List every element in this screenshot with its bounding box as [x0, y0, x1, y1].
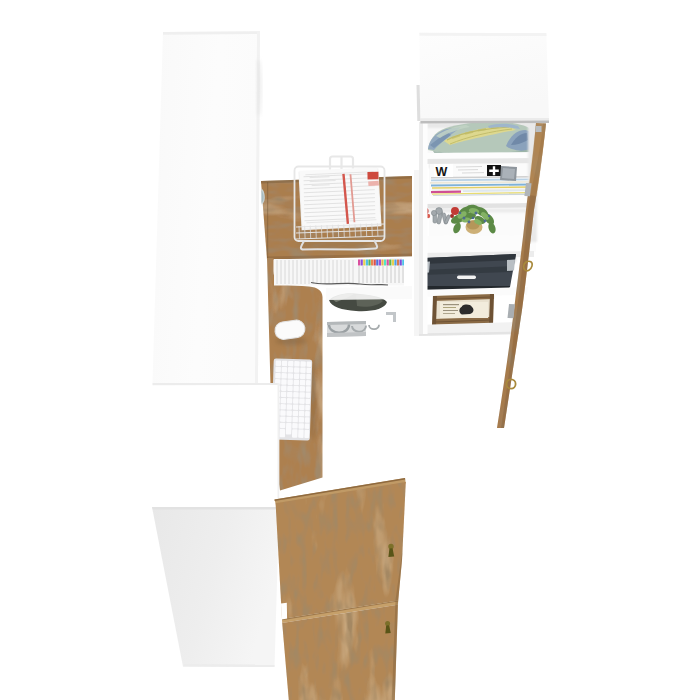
svg-text:W: W: [436, 165, 448, 179]
